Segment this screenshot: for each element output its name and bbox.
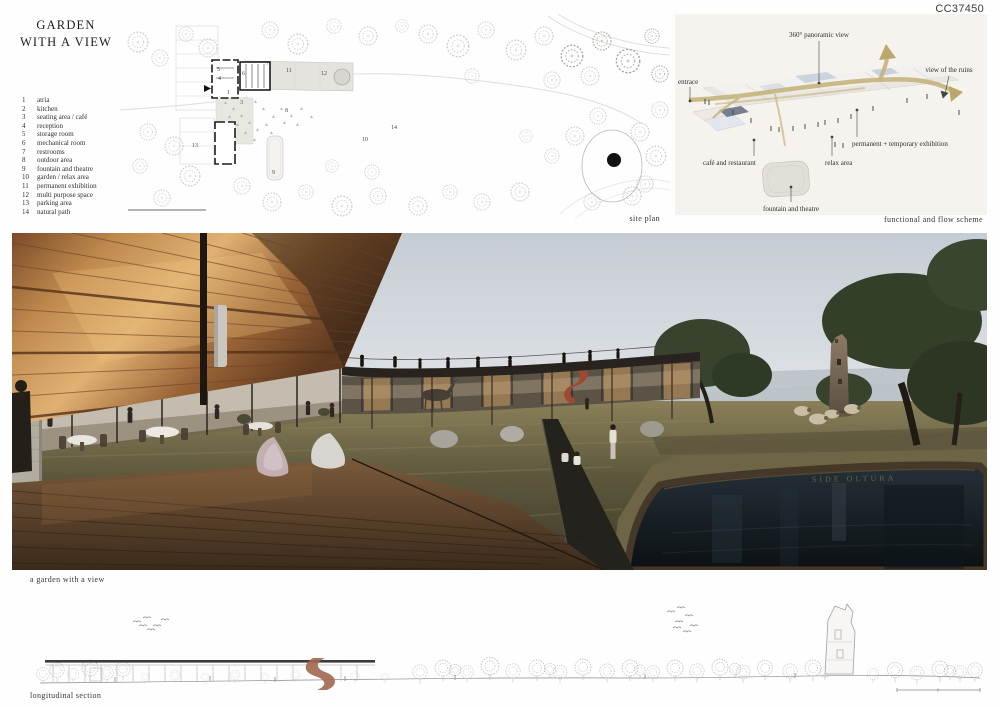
flow-scheme-drawing: 360° panoramic view view of the ruins en… (675, 14, 987, 215)
legend-number: 8 (22, 156, 37, 165)
label-panoramic-view: 360° panoramic view (789, 31, 850, 39)
pool-inscription: SIDE OLTURA (812, 474, 897, 484)
legend-number: 4 (22, 122, 37, 131)
section-caption: longitudinal section (30, 691, 101, 700)
legend-row: 5storage room (22, 130, 97, 139)
legend-number: 3 (22, 113, 37, 122)
foreground-figure (12, 380, 32, 473)
main-render: SIDE OLTURA (12, 233, 987, 570)
svg-text:10: 10 (362, 137, 368, 143)
legend-row: 11permanent exhibition (22, 182, 97, 191)
svg-text:9: 9 (272, 170, 275, 176)
program-legend: 1atria 2kitchen 3seating area / café 4re… (22, 96, 97, 217)
board-title-line2: WITH A VIEW (16, 34, 116, 51)
right-arrow (949, 86, 963, 102)
legend-label: permanent exhibition (37, 182, 97, 191)
legend-row: 13parking area (22, 199, 97, 208)
legend-number: 12 (22, 191, 37, 200)
legend-label: reception (37, 122, 63, 131)
legend-row: 12multi purpose space (22, 191, 97, 200)
legend-row: 9fountain and theatre (22, 165, 97, 174)
legend-row: 4reception (22, 122, 97, 131)
plant (318, 408, 330, 416)
legend-number: 14 (22, 208, 37, 217)
legend-number: 7 (22, 148, 37, 157)
svg-text:6: 6 (242, 71, 245, 77)
svg-text:8: 8 (285, 108, 288, 114)
label-entrance: entrace (678, 78, 698, 86)
building-plan (204, 60, 353, 180)
legend-label: restrooms (37, 148, 65, 157)
legend-number: 11 (22, 182, 37, 191)
legend-row: 6mechanical room (22, 139, 97, 148)
structural-column (200, 233, 207, 405)
label-fountain-theatre: fountain and theatre (763, 205, 819, 213)
label-exhibition: permanent + temporary exhibition (852, 140, 948, 148)
label-view-of-ruins: view of the ruins (925, 66, 973, 74)
plant (237, 414, 251, 424)
section-scale-bar (897, 688, 980, 692)
render-caption: a garden with a view (30, 575, 105, 584)
legend-label: mechanical room (37, 139, 85, 148)
legend-label: kitchen (37, 105, 58, 114)
legend-number: 5 (22, 130, 37, 139)
legend-row: 3seating area / café (22, 113, 97, 122)
svg-text:3: 3 (240, 100, 243, 106)
building-section (45, 658, 375, 690)
section-drawing (35, 598, 985, 693)
legend-number: 13 (22, 199, 37, 208)
legend-label: parking area (37, 199, 72, 208)
legend-number: 9 (22, 165, 37, 174)
legend-row: 2kitchen (22, 105, 97, 114)
board-title-line1: GARDEN (16, 17, 116, 34)
legend-number: 1 (22, 96, 37, 105)
legend-row: 8outdoor area (22, 156, 97, 165)
svg-text:14: 14 (391, 125, 397, 131)
scheme-caption: functional and flow scheme (675, 215, 983, 224)
legend-label: atria (37, 96, 49, 105)
site-plan-caption: site plan (120, 214, 660, 223)
legend-label: multi purpose space (37, 191, 93, 200)
legend-row: 10garden / relax area (22, 173, 97, 182)
legend-label: garden / relax area (37, 173, 89, 182)
legend-label: outdoor area (37, 156, 72, 165)
label-relax-area: relax area (825, 159, 853, 167)
legend-number: 6 (22, 139, 37, 148)
legend-label: natural path (37, 208, 70, 217)
legend-label: storage room (37, 130, 74, 139)
flow-scheme-panel: 360° panoramic view view of the ruins en… (675, 14, 987, 215)
legend-row: 7restrooms (22, 148, 97, 157)
legend-row: 1atria (22, 96, 97, 105)
legend-label: fountain and theatre (37, 165, 93, 174)
site-trees-dark (561, 29, 668, 82)
section-panel (35, 598, 985, 693)
presentation-board: CC37450 GARDEN WITH A VIEW 1atria 2kitch… (0, 0, 1000, 707)
ruins-tower-marker (607, 153, 621, 167)
legend-label: seating area / café (37, 113, 87, 122)
site-plan-panel: 5 4 6 7 11 12 1 3 8 13 9 10 14 (120, 14, 670, 225)
render-illustration: SIDE OLTURA (12, 233, 987, 570)
birds (133, 607, 698, 632)
svg-text:12: 12 (321, 71, 327, 77)
section-tower (825, 604, 855, 674)
svg-text:5: 5 (217, 67, 220, 73)
up-arrow (879, 44, 896, 60)
legend-row: 14natural path (22, 208, 97, 217)
svg-text:7: 7 (266, 61, 269, 67)
board-title: GARDEN WITH A VIEW (16, 17, 116, 51)
svg-text:13: 13 (192, 143, 198, 149)
section-spiral-stair (306, 658, 335, 690)
legend-number: 2 (22, 105, 37, 114)
svg-text:1: 1 (227, 90, 230, 96)
svg-text:4: 4 (218, 76, 221, 82)
label-cafe-restaurant: café and restaurant (703, 159, 756, 167)
legend-number: 10 (22, 173, 37, 182)
svg-text:11: 11 (286, 68, 292, 74)
site-paths (120, 14, 670, 219)
site-plan-drawing: 5 4 6 7 11 12 1 3 8 13 9 10 14 (120, 14, 670, 225)
figure-in-glass (585, 398, 589, 409)
